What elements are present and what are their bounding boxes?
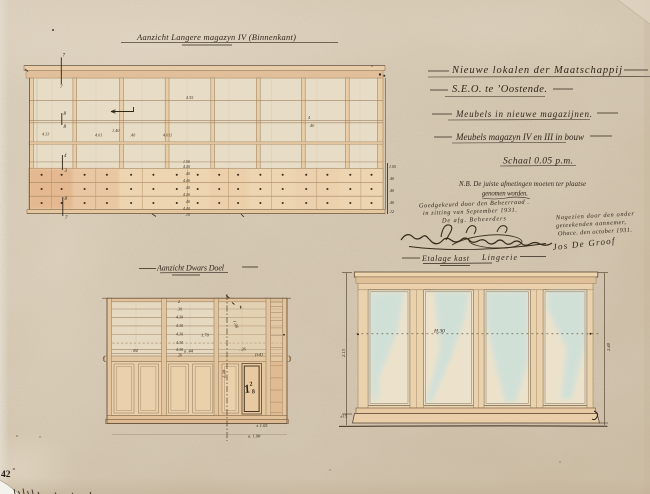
svg-text:a .44: a .44 [184,349,194,354]
svg-text:1.40: 1.40 [112,128,120,133]
svg-text:=: = [13,468,16,473]
svg-text:42: 42 [1,470,11,480]
svg-text:4.40: 4.40 [183,179,190,183]
svg-text:1.70: 1.70 [201,333,210,338]
svg-text:.40: .40 [389,188,394,193]
svg-text:Schaal 0.05 p.m.: Schaal 0.05 p.m. [503,157,573,167]
svg-text:4.40: 4.40 [183,207,190,211]
svg-text:4.30: 4.30 [176,323,183,328]
svg-text:Nieuwe lokalen der Maatschappi: Nieuwe lokalen der Maatschappij [451,65,622,76]
svg-text:. 84: . 84 [131,348,139,353]
svg-text:Etalage kast: Etalage kast [421,254,470,263]
svg-text:S.E.O. te ’Oostende.: S.E.O. te ’Oostende. [452,84,547,95]
svg-text:.12: .12 [389,209,394,214]
svg-text:H.30: H.30 [433,329,445,335]
svg-text:4.01: 4.01 [95,133,102,138]
svg-text:Aanzicht Dwars Doel: Aanzicht Dwars Doel [156,264,225,273]
svg-text:.26: .26 [177,353,182,358]
svg-text:4.40: 4.40 [183,193,190,197]
svg-text:.40: .40 [389,176,394,181]
svg-text:. 26: . 26 [239,347,247,352]
svg-text:±15: ±15 [340,414,348,419]
svg-text:.10: .10 [185,213,190,217]
svg-text:(±4): (±4) [255,352,263,357]
svg-text:genomen worden.: genomen worden. [482,191,528,198]
svg-text:2.30: 2.30 [222,369,227,378]
svg-text:4.30: 4.30 [176,347,183,352]
svg-text:2.13: 2.13 [341,348,346,357]
svg-text:.40: .40 [130,133,136,138]
svg-text:1.05: 1.05 [389,164,396,169]
svg-text:.40: .40 [185,186,190,190]
svg-text:Aanzicht Langere magazyn IV (B: Aanzicht Langere magazyn IV (Binnenkant) [136,32,296,42]
svg-text:.40: .40 [185,172,190,176]
svg-text:± 1.05: ± 1.05 [256,423,268,428]
svg-text:2: 2 [178,299,180,304]
svg-text:4.30: 4.30 [176,315,183,320]
svg-text:N.B. De juiste afmetingen moet: N.B. De juiste afmetingen moeten ter pla… [458,181,586,188]
svg-text:4.55: 4.55 [186,95,193,100]
svg-text:4.40: 4.40 [183,165,190,169]
svg-text:.40: .40 [309,123,315,128]
svg-text:Meubels magazyn IV en III in b: Meubels magazyn IV en III in bouw [455,132,584,142]
svg-text:4.30: 4.30 [176,340,183,345]
svg-text:.30: .30 [177,307,182,312]
svg-text:.40: .40 [389,200,394,205]
svg-text:4.011: 4.011 [163,133,172,138]
svg-text:1.50: 1.50 [183,160,190,164]
svg-text:.40: .40 [185,200,190,204]
svg-text:2.48: 2.48 [606,342,611,351]
svg-text:4: 4 [308,115,310,120]
svg-text:4.30: 4.30 [176,332,183,337]
svg-text:4.33: 4.33 [42,132,49,137]
svg-text:Meubels in nieuwe magazijnen.: Meubels in nieuwe magazijnen. [455,109,592,119]
